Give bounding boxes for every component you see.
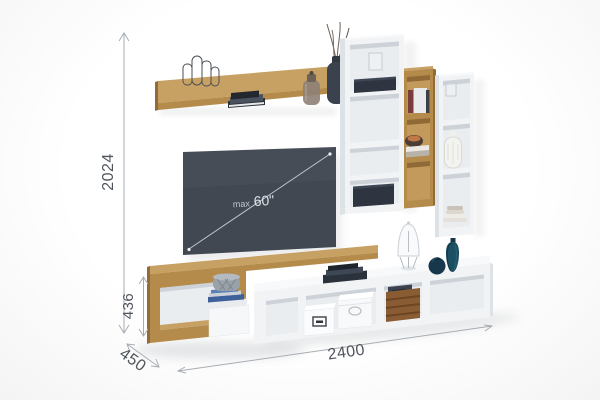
height-label: 2024 [100, 153, 117, 191]
white-storage-box-oval-label [338, 292, 374, 330]
tv-label-max: max [233, 198, 251, 209]
tv-label-size: 60" [253, 192, 275, 209]
glass-cube-decor [369, 53, 382, 70]
width-label: 2400 [327, 342, 367, 364]
books-decor [408, 88, 430, 113]
glass-cloche [398, 221, 419, 270]
wall-unit-render: max 60" [0, 0, 600, 400]
book-stack-small [406, 145, 429, 158]
white-storage-box-metal-label [304, 303, 336, 336]
dark-storage-box [353, 184, 394, 208]
tv-corner-dot [328, 152, 331, 155]
stand-height-label: 436 [120, 293, 137, 320]
glass-cube-decor [446, 83, 456, 96]
tv: max 60" [183, 147, 336, 255]
dimension-height: 2024 [100, 33, 129, 333]
wooden-crate [386, 285, 420, 323]
right-white-cabinet [435, 72, 474, 238]
navy-vase-round [429, 257, 446, 274]
oak-cabinet [404, 66, 436, 209]
candle-bowl [405, 135, 423, 147]
product-image: max 60" [0, 0, 600, 400]
tall-white-cabinet [340, 34, 404, 215]
book-stack-stand [206, 288, 247, 309]
tv-corner-dot [187, 248, 190, 251]
woven-basket [213, 274, 240, 292]
